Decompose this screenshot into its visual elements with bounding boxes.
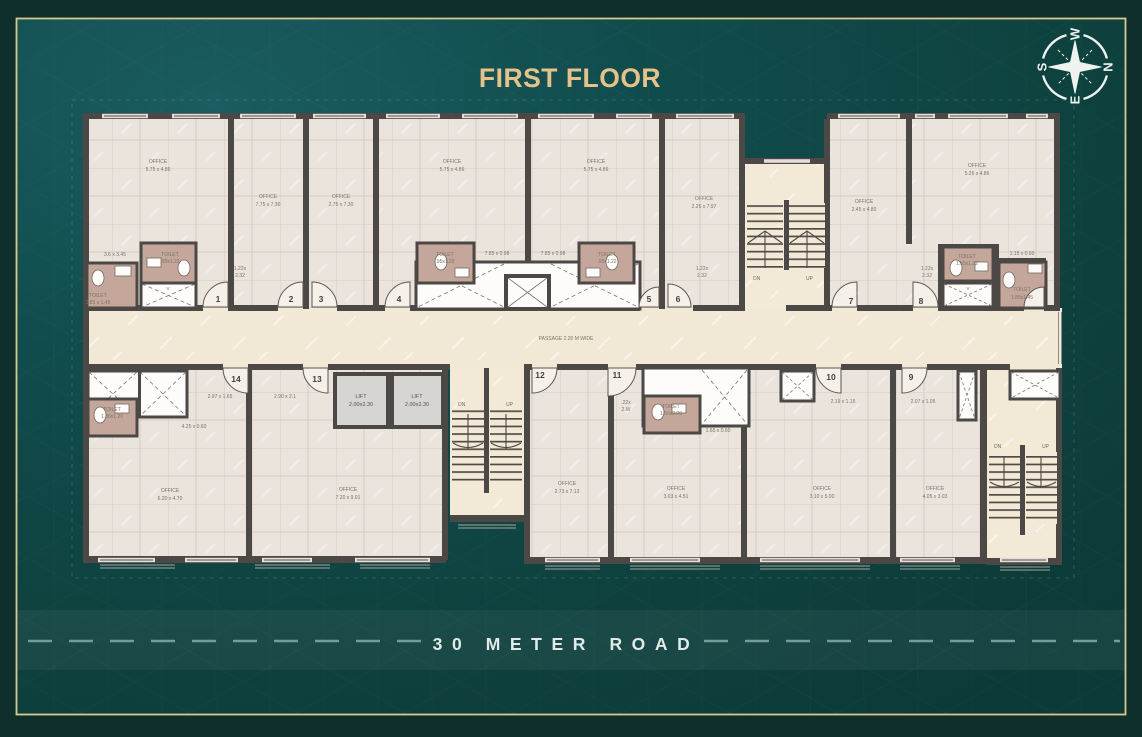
svg-text:OFFICE: OFFICE	[558, 481, 577, 487]
svg-text:2.W: 2.W	[622, 407, 631, 413]
svg-text:OFFICE: OFFICE	[149, 159, 168, 165]
svg-text:1.50x2.00: 1.50x2.00	[660, 411, 682, 417]
svg-text:PASSAGE 2.20 M WIDE: PASSAGE 2.20 M WIDE	[539, 336, 594, 342]
svg-text:1: 1	[216, 294, 221, 304]
svg-text:OFFICE: OFFICE	[587, 159, 606, 165]
svg-text:4: 4	[397, 294, 402, 304]
svg-text:OFFICE: OFFICE	[968, 163, 987, 169]
svg-text:LIFT: LIFT	[411, 394, 423, 400]
svg-text:9: 9	[909, 372, 914, 382]
svg-text:2.19 x 1.15: 2.19 x 1.15	[831, 399, 856, 405]
svg-text:2: 2	[289, 294, 294, 304]
svg-text:5.26 x 4.86: 5.26 x 4.86	[965, 171, 990, 177]
svg-text:.22x: .22x	[621, 400, 631, 406]
svg-text:OFFICE: OFFICE	[161, 488, 180, 494]
svg-text:8: 8	[919, 296, 924, 306]
svg-text:TOILET: TOILET	[958, 254, 975, 260]
svg-text:3.03 x 4.51: 3.03 x 4.51	[664, 494, 689, 500]
svg-text:1.22x: 1.22x	[921, 266, 934, 272]
svg-text:2.90 x 2.1: 2.90 x 2.1	[274, 394, 296, 400]
svg-text:2.25 x 7.97: 2.25 x 7.97	[692, 204, 717, 210]
svg-text:.95x1.22: .95x1.22	[160, 259, 179, 265]
svg-text:UP: UP	[506, 402, 514, 408]
svg-text:11: 11	[613, 370, 622, 380]
svg-text:7: 7	[849, 296, 854, 306]
svg-text:1.86x1.20: 1.86x1.20	[101, 414, 123, 420]
svg-text:2.32: 2.32	[697, 273, 707, 279]
svg-text:10: 10	[826, 372, 836, 382]
svg-text:7.75 x 7.30: 7.75 x 7.30	[256, 202, 281, 208]
svg-text:4.25 x 0.60: 4.25 x 0.60	[182, 424, 207, 430]
svg-text:OFFICE: OFFICE	[667, 486, 686, 492]
svg-text:1.22x: 1.22x	[696, 266, 709, 272]
svg-text:TOILET: TOILET	[436, 252, 453, 258]
svg-text:2.73 x 7.13: 2.73 x 7.13	[555, 489, 580, 495]
svg-text:12: 12	[535, 370, 545, 380]
svg-text:1.22x: 1.22x	[234, 266, 247, 272]
svg-text:UP: UP	[1042, 444, 1050, 450]
svg-text:7.85 x 0.98: 7.85 x 0.98	[541, 251, 566, 257]
svg-text:V: V	[166, 286, 169, 291]
svg-text:LIFT: LIFT	[355, 394, 367, 400]
svg-text:5: 5	[647, 294, 652, 304]
svg-text:S: S	[1035, 62, 1050, 71]
svg-text:14: 14	[231, 374, 241, 384]
svg-text:TOILET: TOILET	[103, 407, 120, 413]
svg-text:5.75 x 4.86: 5.75 x 4.86	[146, 167, 171, 173]
svg-text:TOILET: TOILET	[598, 252, 615, 258]
svg-text:5.75 x 4.86: 5.75 x 4.86	[584, 167, 609, 173]
svg-text:1.65 x 0.60: 1.65 x 0.60	[706, 428, 731, 434]
svg-text:.95x1.22: .95x1.22	[435, 259, 454, 265]
svg-text:7.20 x 9.01: 7.20 x 9.01	[336, 495, 361, 501]
svg-text:5.75 x 4.86: 5.75 x 4.86	[440, 167, 465, 173]
svg-text:2.97 x 1.65: 2.97 x 1.65	[208, 394, 233, 400]
svg-text:1.55x1.22: 1.55x1.22	[956, 261, 978, 267]
svg-text:.95x1.22: .95x1.22	[597, 259, 616, 265]
svg-text:N: N	[1101, 62, 1116, 71]
svg-text:TOILET: TOILET	[161, 252, 178, 258]
svg-text:7.85 x 0.98: 7.85 x 0.98	[485, 251, 510, 257]
svg-text:V: V	[966, 286, 969, 291]
svg-text:DN: DN	[458, 402, 466, 408]
svg-text:OFFICE: OFFICE	[926, 486, 945, 492]
svg-text:1.85x1.45: 1.85x1.45	[1011, 295, 1033, 301]
svg-text:30 METER ROAD: 30 METER ROAD	[433, 634, 700, 654]
svg-text:2.00x2.30: 2.00x2.30	[405, 402, 429, 408]
svg-text:OFFICE: OFFICE	[443, 159, 462, 165]
svg-text:2.32: 2.32	[235, 273, 245, 279]
svg-text:TOILET: TOILET	[89, 293, 106, 299]
svg-text:2.07 x 1.05: 2.07 x 1.05	[911, 399, 936, 405]
svg-text:2.32: 2.32	[922, 273, 932, 279]
svg-text:2.00x2.30: 2.00x2.30	[349, 402, 373, 408]
svg-text:DN: DN	[753, 276, 761, 282]
svg-text:OFFICE: OFFICE	[855, 199, 874, 205]
svg-text:3.6 x 3.45: 3.6 x 3.45	[104, 252, 126, 258]
svg-text:FIRST FLOOR: FIRST FLOOR	[479, 63, 661, 93]
svg-text:DN: DN	[994, 444, 1002, 450]
svg-text:1.85 x 1.45: 1.85 x 1.45	[86, 300, 111, 306]
svg-text:6.20 x 4.70: 6.20 x 4.70	[158, 496, 183, 502]
svg-text:1.15 x 0.60: 1.15 x 0.60	[1010, 251, 1035, 257]
svg-text:2.75 x 7.30: 2.75 x 7.30	[329, 202, 354, 208]
svg-text:TOILET: TOILET	[1013, 287, 1030, 293]
svg-text:OFFICE: OFFICE	[813, 486, 832, 492]
svg-text:UP: UP	[806, 276, 814, 282]
svg-text:OFFICE: OFFICE	[339, 487, 358, 493]
svg-text:3.10 x 5.00: 3.10 x 5.00	[810, 494, 835, 500]
svg-text:OFFICE: OFFICE	[259, 194, 278, 200]
svg-text:3: 3	[319, 294, 324, 304]
svg-text:TOILET: TOILET	[662, 404, 679, 410]
svg-text:OFFICE: OFFICE	[332, 194, 351, 200]
svg-text:OFFICE: OFFICE	[695, 196, 714, 202]
svg-text:13: 13	[312, 374, 322, 384]
svg-text:E: E	[1068, 95, 1083, 104]
svg-text:2.45 x 4.80: 2.45 x 4.80	[852, 207, 877, 213]
svg-text:6: 6	[676, 294, 681, 304]
svg-text:W: W	[1068, 27, 1083, 40]
svg-text:4.05 x 3.03: 4.05 x 3.03	[923, 494, 948, 500]
